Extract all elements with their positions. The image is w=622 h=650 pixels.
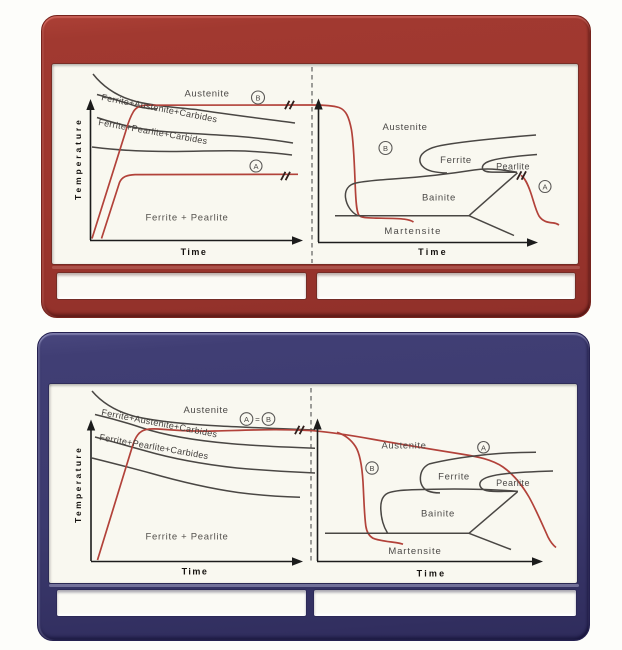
svg-text:Temperature: Temperature: [73, 446, 83, 523]
svg-text:=: =: [255, 415, 260, 424]
svg-text:Austenite: Austenite: [381, 441, 426, 452]
svg-text:Temperature: Temperature: [73, 117, 83, 200]
svg-text:Austenite: Austenite: [184, 89, 229, 100]
svg-text:Time: Time: [417, 569, 447, 579]
svg-text:Martensite: Martensite: [384, 226, 441, 237]
svg-text:Bainite: Bainite: [422, 193, 456, 204]
svg-text:B: B: [369, 464, 374, 473]
svg-text:Time: Time: [182, 567, 209, 577]
svg-text:Austenite: Austenite: [382, 122, 427, 133]
svg-text:Ferrite + Pearlite: Ferrite + Pearlite: [145, 213, 228, 224]
svg-text:A: A: [542, 183, 547, 192]
svg-text:Ferrite: Ferrite: [440, 155, 472, 166]
svg-text:Time: Time: [181, 247, 208, 257]
svg-text:Austenite: Austenite: [183, 405, 228, 416]
svg-text:B: B: [383, 144, 388, 153]
svg-text:B: B: [266, 415, 271, 424]
svg-text:Ferrite + Pearlite: Ferrite + Pearlite: [145, 532, 228, 543]
svg-text:A: A: [481, 443, 486, 452]
svg-text:A: A: [244, 415, 249, 424]
svg-text:Pearlite: Pearlite: [496, 478, 530, 488]
svg-text:B: B: [255, 94, 260, 103]
svg-text:Time: Time: [418, 247, 448, 257]
svg-text:Pearlite: Pearlite: [496, 162, 530, 172]
svg-text:Ferrite: Ferrite: [438, 472, 470, 483]
svg-text:A: A: [253, 162, 258, 171]
svg-text:Ferrite+Pearlite+Carbides: Ferrite+Pearlite+Carbides: [98, 117, 209, 146]
svg-text:Martensite: Martensite: [388, 546, 441, 557]
svg-text:Bainite: Bainite: [421, 509, 455, 520]
svg-text:Ferrite+Pearlite+Carbides: Ferrite+Pearlite+Carbides: [99, 432, 210, 461]
